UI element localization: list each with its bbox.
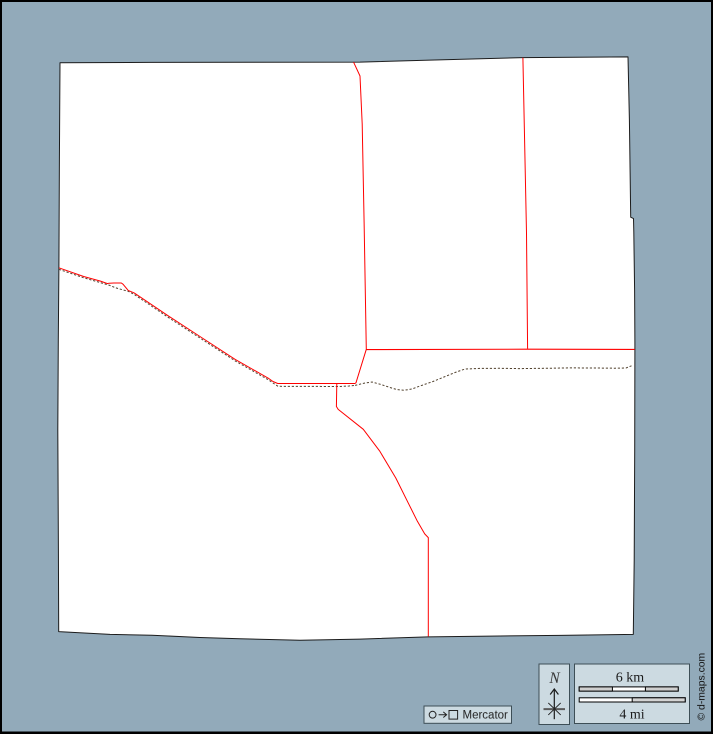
svg-text:N: N (548, 670, 561, 687)
svg-text:6 km: 6 km (616, 670, 645, 685)
svg-text:Mercator: Mercator (462, 710, 508, 722)
svg-text:© d-maps.com: © d-maps.com (697, 653, 708, 721)
svg-text:4 mi: 4 mi (619, 707, 644, 722)
